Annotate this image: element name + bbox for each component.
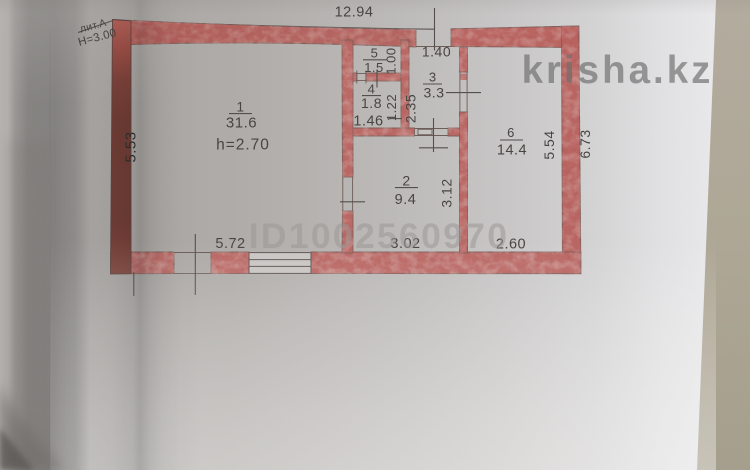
svg-text:ID1002560970: ID1002560970 — [249, 216, 510, 256]
svg-text:krisha.kz: krisha.kz — [522, 49, 714, 92]
